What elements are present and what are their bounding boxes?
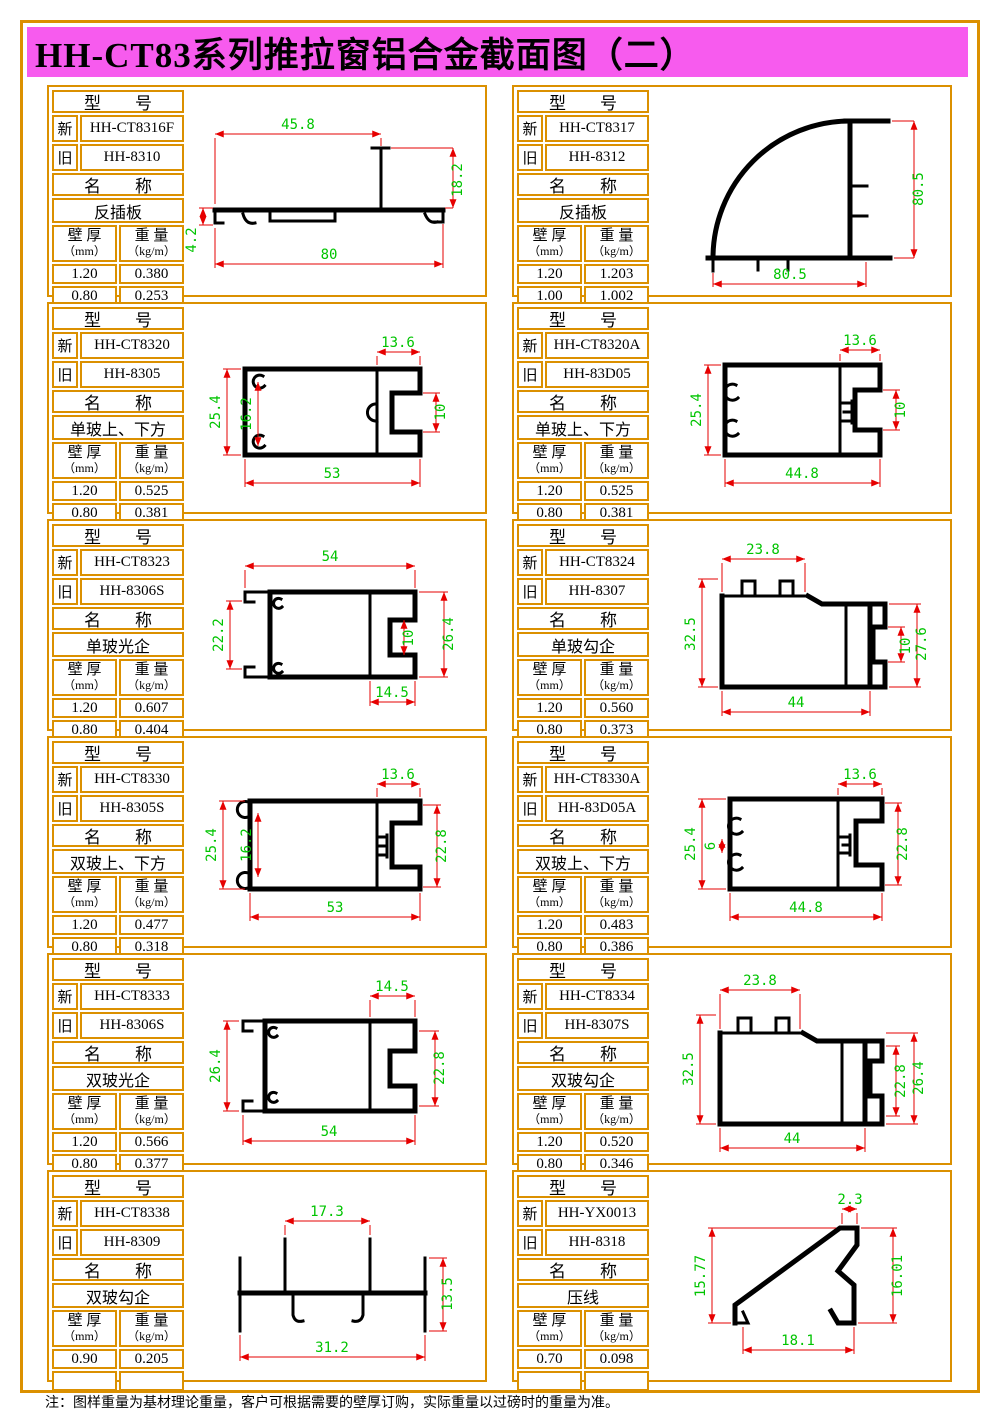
thickness-value: 1.20	[517, 481, 582, 501]
old-label: 旧	[517, 1012, 543, 1039]
dim-label: 16.01	[890, 1255, 906, 1297]
dim-label: 13.6	[381, 767, 415, 783]
dim-label: 16.2	[239, 828, 255, 862]
weight-header: 重 量（kg/m）	[584, 442, 649, 479]
spec-table: 型 号 新HH-CT8330 旧HH-8305S 名 称 双玻上、下方 壁 厚（…	[52, 741, 184, 957]
new-label: 新	[517, 115, 543, 142]
thickness-value: 1.20	[52, 264, 117, 284]
thickness-value	[52, 1371, 117, 1391]
dim-label: 22.2	[211, 618, 227, 652]
new-label: 新	[517, 332, 543, 359]
thickness-value: 1.20	[517, 264, 582, 284]
new-label: 新	[517, 766, 543, 793]
thickness-header: 壁 厚（mm）	[517, 1093, 582, 1130]
new-label: 新	[517, 1200, 543, 1227]
old-label: 旧	[517, 578, 543, 605]
profile-card: 型 号 新HH-CT8338 旧HH-8309 名 称 双玻勾企 壁 厚（mm）…	[47, 1170, 487, 1382]
old-label: 旧	[517, 1229, 543, 1256]
thickness-value: 1.20	[52, 1132, 117, 1152]
model-header: 型 号	[517, 307, 649, 330]
spec-table: 型 号 新HH-CT8320A 旧HH-83D05 名 称 单玻上、下方 壁 厚…	[517, 307, 649, 523]
thickness-header: 壁 厚（mm）	[517, 1310, 582, 1347]
dim-label: 44	[784, 1131, 801, 1147]
dim-label: 80.5	[773, 267, 807, 283]
dimension-lines: 13.6 25.4 6 22.8 44.8	[683, 767, 911, 921]
model-old: HH-8306S	[80, 1012, 184, 1039]
model-old: HH-8312	[545, 144, 649, 171]
dim-label: 25.4	[689, 393, 705, 427]
weight-value: 0.607	[119, 698, 184, 718]
dim-label: 4.2	[185, 227, 200, 252]
title-banner: HH-CT83系列推拉窗铝合金截面图（二）	[27, 27, 968, 77]
weight-header: 重 量（kg/m）	[119, 1093, 184, 1130]
new-label: 新	[52, 766, 78, 793]
new-label: 新	[517, 983, 543, 1010]
new-label: 新	[52, 983, 78, 1010]
profile-name: 单玻勾企	[517, 632, 649, 657]
dim-label: 27.6	[914, 627, 930, 661]
dim-label: 45.8	[281, 117, 315, 133]
dim-label: 22.8	[434, 829, 450, 863]
thickness-value: 1.20	[517, 1132, 582, 1152]
name-header: 名 称	[52, 607, 184, 630]
model-new: HH-CT8324	[545, 549, 649, 576]
dim-label: 22.8	[895, 827, 911, 861]
weight-header: 重 量（kg/m）	[119, 442, 184, 479]
profile-shape	[728, 799, 882, 889]
model-old: HH-8310	[80, 144, 184, 171]
footnote: 注：图样重量为基材理论重量，客户可根据需要的壁厚订购，实际重量以过磅时的重量为准…	[45, 1392, 619, 1412]
profile-name: 单玻上、下方	[52, 415, 184, 440]
old-label: 旧	[52, 1012, 78, 1039]
profile-card: 型 号 新HH-CT8316F 旧HH-8310 名 称 反插板 壁 厚（mm）…	[47, 85, 487, 297]
dim-label: 10	[401, 630, 417, 647]
spec-table: 型 号 新HH-CT8317 旧HH-8312 名 称 反插板 壁 厚（mm） …	[517, 90, 649, 306]
profile-name: 双玻上、下方	[52, 849, 184, 874]
weight-value: 1.203	[584, 264, 649, 284]
model-header: 型 号	[52, 741, 184, 764]
dim-label: 6	[703, 842, 719, 850]
weight-value	[584, 1371, 649, 1391]
dim-label: 10	[893, 402, 909, 419]
dim-label: 26.4	[208, 1049, 224, 1083]
thickness-header: 壁 厚（mm）	[517, 225, 582, 262]
thickness-value	[517, 1371, 582, 1391]
old-label: 旧	[52, 578, 78, 605]
profile-shape	[724, 365, 880, 455]
profile-card: 型 号 新HH-YX0013 旧HH-8318 名 称 压线 壁 厚（mm） 重…	[512, 1170, 952, 1382]
dim-label: 13.5	[440, 1277, 456, 1311]
spec-table: 型 号 新HH-CT8324 旧HH-8307 名 称 单玻勾企 壁 厚（mm）…	[517, 524, 649, 740]
weight-value: 0.098	[584, 1349, 649, 1369]
name-header: 名 称	[52, 1258, 184, 1281]
dim-label: 53	[327, 900, 344, 916]
weight-value: 0.525	[584, 481, 649, 501]
name-header: 名 称	[517, 390, 649, 413]
spec-table: 型 号 新HH-CT8320 旧HH-8305 名 称 单玻上、下方 壁 厚（m…	[52, 307, 184, 523]
weight-header: 重 量（kg/m）	[584, 1093, 649, 1130]
dim-label: 13.6	[843, 767, 877, 783]
old-label: 旧	[517, 795, 543, 822]
dim-label: 18.1	[781, 1333, 815, 1349]
dim-label: 32.5	[681, 1052, 697, 1086]
dim-label: 32.5	[683, 617, 699, 651]
model-old: HH-8307	[545, 578, 649, 605]
model-header: 型 号	[517, 741, 649, 764]
model-new: HH-CT8323	[80, 549, 184, 576]
model-new: HH-YX0013	[545, 1200, 649, 1227]
model-new: HH-CT8316F	[80, 115, 184, 142]
name-header: 名 称	[517, 607, 649, 630]
model-header: 型 号	[517, 524, 649, 547]
thickness-value: 0.70	[517, 1349, 582, 1369]
model-header: 型 号	[52, 1175, 184, 1198]
model-header: 型 号	[52, 307, 184, 330]
model-new: HH-CT8320	[80, 332, 184, 359]
name-header: 名 称	[517, 824, 649, 847]
model-old: HH-8306S	[80, 578, 184, 605]
dim-label: 22.8	[893, 1064, 909, 1098]
dim-label: 17.3	[310, 1204, 344, 1220]
profile-shape	[215, 148, 443, 223]
weight-header: 重 量（kg/m）	[584, 876, 649, 913]
dim-label: 14.5	[375, 685, 409, 701]
thickness-header: 壁 厚（mm）	[52, 225, 117, 262]
thickness-value: 1.20	[52, 698, 117, 718]
model-old: HH-8309	[80, 1229, 184, 1256]
profile-card: 型 号 新HH-CT8330A 旧HH-83D05A 名 称 双玻上、下方 壁 …	[512, 736, 952, 948]
dim-label: 23.8	[743, 973, 777, 989]
thickness-header: 壁 厚（mm）	[517, 876, 582, 913]
profile-name: 双玻上、下方	[517, 849, 649, 874]
weight-header: 重 量（kg/m）	[119, 225, 184, 262]
name-header: 名 称	[52, 390, 184, 413]
model-old: HH-8305	[80, 361, 184, 388]
model-new: HH-CT8320A	[545, 332, 649, 359]
dim-label: 18.2	[450, 163, 466, 197]
weight-header: 重 量（kg/m）	[584, 225, 649, 262]
profile-drawing: 80.5 80.5	[650, 88, 950, 296]
name-header: 名 称	[52, 824, 184, 847]
model-header: 型 号	[52, 524, 184, 547]
profile-drawing: 13.6 25.4 10 44.8	[650, 305, 950, 513]
model-old: HH-83D05A	[545, 795, 649, 822]
profile-name: 单玻光企	[52, 632, 184, 657]
weight-value: 0.483	[584, 915, 649, 935]
dim-label: 25.4	[683, 827, 699, 861]
dim-label: 15.77	[693, 1255, 709, 1297]
profile-drawing: 23.8 32.5 22.8 26.4 44	[650, 956, 950, 1164]
name-header: 名 称	[52, 173, 184, 196]
dim-label: 54	[322, 549, 339, 565]
weight-header: 重 量（kg/m）	[119, 659, 184, 696]
profile-shape	[245, 592, 415, 677]
spec-table: 型 号 新HH-CT8316F 旧HH-8310 名 称 反插板 壁 厚（mm）…	[52, 90, 184, 306]
dim-label: 53	[324, 466, 341, 482]
weight-header: 重 量（kg/m）	[584, 1310, 649, 1347]
weight-value: 0.477	[119, 915, 184, 935]
old-label: 旧	[517, 144, 543, 171]
thickness-value: 1.20	[52, 481, 117, 501]
dim-label: 23.8	[746, 542, 780, 558]
model-new: HH-CT8330	[80, 766, 184, 793]
dim-label: 16.2	[239, 397, 255, 431]
weight-value: 0.205	[119, 1349, 184, 1369]
dim-label: 22.8	[432, 1051, 448, 1085]
model-header: 型 号	[517, 1175, 649, 1198]
profile-drawing: 13.6 25.4 16.2 10 53	[185, 305, 485, 513]
thickness-header: 壁 厚（mm）	[52, 1310, 117, 1347]
model-header: 型 号	[517, 958, 649, 981]
dim-label: 80	[321, 247, 338, 263]
dim-label: 25.4	[208, 395, 224, 429]
profile-name: 双玻勾企	[517, 1066, 649, 1091]
profile-card: 型 号 新HH-CT8320 旧HH-8305 名 称 单玻上、下方 壁 厚（m…	[47, 302, 487, 514]
profile-card: 型 号 新HH-CT8333 旧HH-8306S 名 称 双玻光企 壁 厚（mm…	[47, 953, 487, 1165]
profile-shape	[243, 1021, 415, 1111]
weight-header: 重 量（kg/m）	[584, 659, 649, 696]
model-old: HH-83D05	[545, 361, 649, 388]
weight-header: 重 量（kg/m）	[119, 876, 184, 913]
model-new: HH-CT8338	[80, 1200, 184, 1227]
profile-card: 型 号 新HH-CT8334 旧HH-8307S 名 称 双玻勾企 壁 厚（mm…	[512, 953, 952, 1165]
dim-label: 26.4	[911, 1061, 927, 1095]
dim-label: 13.6	[381, 335, 415, 351]
model-old: HH-8318	[545, 1229, 649, 1256]
profile-drawing: 23.8 32.5 10 27.6 44	[650, 522, 950, 730]
spec-table: 型 号 新HH-CT8338 旧HH-8309 名 称 双玻勾企 壁 厚（mm）…	[52, 1175, 184, 1391]
dimension-lines: 14.5 26.4 22.8 54	[208, 979, 448, 1145]
profile-name: 双玻勾企	[52, 1283, 184, 1308]
profile-shape	[722, 581, 885, 687]
profile-drawing: 13.6 25.4 6 22.8 44.8	[650, 739, 950, 947]
dimension-lines: 13.6 25.4 16.2 10 53	[208, 335, 449, 487]
catalog-page: { "page": { "title": "HH-CT83系列推拉窗铝合金截面图…	[0, 0, 1000, 1415]
weight-value: 0.380	[119, 264, 184, 284]
spec-table: 型 号 新HH-CT8330A 旧HH-83D05A 名 称 双玻上、下方 壁 …	[517, 741, 649, 957]
thickness-value: 1.20	[52, 915, 117, 935]
profile-drawing: 17.3 13.5 31.2	[185, 1173, 485, 1381]
new-label: 新	[52, 115, 78, 142]
model-old: HH-8305S	[80, 795, 184, 822]
dimension-lines: 45.8 18.2 4.2 80	[185, 117, 466, 268]
new-label: 新	[52, 332, 78, 359]
spec-table: 型 号 新HH-YX0013 旧HH-8318 名 称 压线 壁 厚（mm） 重…	[517, 1175, 649, 1391]
dimension-lines: 54 22.2 10 26.4 14.5	[211, 549, 457, 706]
dim-label: 13.6	[843, 333, 877, 349]
model-header: 型 号	[517, 90, 649, 113]
dim-label: 54	[321, 1124, 338, 1140]
thickness-header: 壁 厚（mm）	[52, 442, 117, 479]
profile-drawing: 14.5 26.4 22.8 54	[185, 956, 485, 1164]
thickness-value: 0.90	[52, 1349, 117, 1369]
new-label: 新	[52, 549, 78, 576]
dim-label: 26.4	[441, 617, 457, 651]
old-label: 旧	[517, 361, 543, 388]
dim-label: 31.2	[315, 1340, 349, 1356]
name-header: 名 称	[52, 1041, 184, 1064]
dim-label: 2.3	[837, 1192, 862, 1208]
profile-card: 型 号 新HH-CT8330 旧HH-8305S 名 称 双玻上、下方 壁 厚（…	[47, 736, 487, 948]
dimension-lines: 80.5 80.5	[713, 121, 927, 287]
dim-label: 25.4	[204, 828, 220, 862]
new-label: 新	[52, 1200, 78, 1227]
dim-label: 14.5	[375, 979, 409, 995]
old-label: 旧	[52, 795, 78, 822]
dimension-lines: 2.3 15.77 16.01 18.1	[693, 1192, 906, 1354]
profile-shape	[720, 1018, 882, 1124]
new-label: 新	[517, 549, 543, 576]
weight-value: 0.560	[584, 698, 649, 718]
model-header: 型 号	[52, 958, 184, 981]
model-header: 型 号	[52, 90, 184, 113]
dim-label: 44	[788, 695, 805, 711]
weight-header: 重 量（kg/m）	[119, 1310, 184, 1347]
model-new: HH-CT8317	[545, 115, 649, 142]
dim-label: 44.8	[785, 466, 819, 482]
thickness-header: 壁 厚（mm）	[52, 659, 117, 696]
thickness-header: 壁 厚（mm）	[517, 659, 582, 696]
spec-table: 型 号 新HH-CT8333 旧HH-8306S 名 称 双玻光企 壁 厚（mm…	[52, 958, 184, 1174]
model-new: HH-CT8334	[545, 983, 649, 1010]
profile-drawing: 13.6 25.4 16.2 22.8 53	[185, 739, 485, 947]
thickness-value: 1.20	[517, 915, 582, 935]
dim-label: 44.8	[789, 900, 823, 916]
profile-name: 反插板	[517, 198, 649, 223]
profile-drawing: 54 22.2 10 26.4 14.5	[185, 522, 485, 730]
dim-label: 80.5	[911, 172, 927, 206]
dim-label: 10	[898, 638, 914, 655]
old-label: 旧	[52, 1229, 78, 1256]
weight-value: 0.566	[119, 1132, 184, 1152]
profile-card: 型 号 新HH-CT8317 旧HH-8312 名 称 反插板 壁 厚（mm） …	[512, 85, 952, 297]
profile-drawing: 2.3 15.77 16.01 18.1	[650, 1173, 950, 1381]
dim-label: 10	[433, 404, 449, 421]
profile-name: 反插板	[52, 198, 184, 223]
dimension-lines: 13.6 25.4 10 44.8	[689, 333, 909, 487]
model-old: HH-8307S	[545, 1012, 649, 1039]
profile-shape	[237, 801, 420, 889]
weight-value	[119, 1371, 184, 1391]
name-header: 名 称	[517, 173, 649, 196]
spec-table: 型 号 新HH-CT8323 旧HH-8306S 名 称 单玻光企 壁 厚（mm…	[52, 524, 184, 740]
weight-value: 0.520	[584, 1132, 649, 1152]
profile-shape	[708, 121, 890, 271]
thickness-header: 壁 厚（mm）	[52, 876, 117, 913]
profile-name: 双玻光企	[52, 1066, 184, 1091]
model-new: HH-CT8333	[80, 983, 184, 1010]
profile-card: 型 号 新HH-CT8323 旧HH-8306S 名 称 单玻光企 壁 厚（mm…	[47, 519, 487, 731]
thickness-header: 壁 厚（mm）	[517, 442, 582, 479]
page-title: HH-CT83系列推拉窗铝合金截面图（二）	[27, 27, 696, 78]
model-new: HH-CT8330A	[545, 766, 649, 793]
weight-value: 0.525	[119, 481, 184, 501]
thickness-value: 1.20	[517, 698, 582, 718]
profile-name: 压线	[517, 1283, 649, 1308]
dimension-lines: 13.6 25.4 16.2 22.8 53	[204, 767, 450, 921]
profile-card: 型 号 新HH-CT8324 旧HH-8307 名 称 单玻勾企 壁 厚（mm）…	[512, 519, 952, 731]
profile-name: 单玻上、下方	[517, 415, 649, 440]
spec-table: 型 号 新HH-CT8334 旧HH-8307S 名 称 双玻勾企 壁 厚（mm…	[517, 958, 649, 1174]
profile-drawing: 45.8 18.2 4.2 80	[185, 88, 485, 296]
profile-shape	[240, 1239, 425, 1331]
name-header: 名 称	[517, 1041, 649, 1064]
thickness-header: 壁 厚（mm）	[52, 1093, 117, 1130]
profile-shape	[735, 1228, 857, 1323]
profile-card: 型 号 新HH-CT8320A 旧HH-83D05 名 称 单玻上、下方 壁 厚…	[512, 302, 952, 514]
old-label: 旧	[52, 361, 78, 388]
old-label: 旧	[52, 144, 78, 171]
name-header: 名 称	[517, 1258, 649, 1281]
profile-shape	[245, 369, 420, 455]
